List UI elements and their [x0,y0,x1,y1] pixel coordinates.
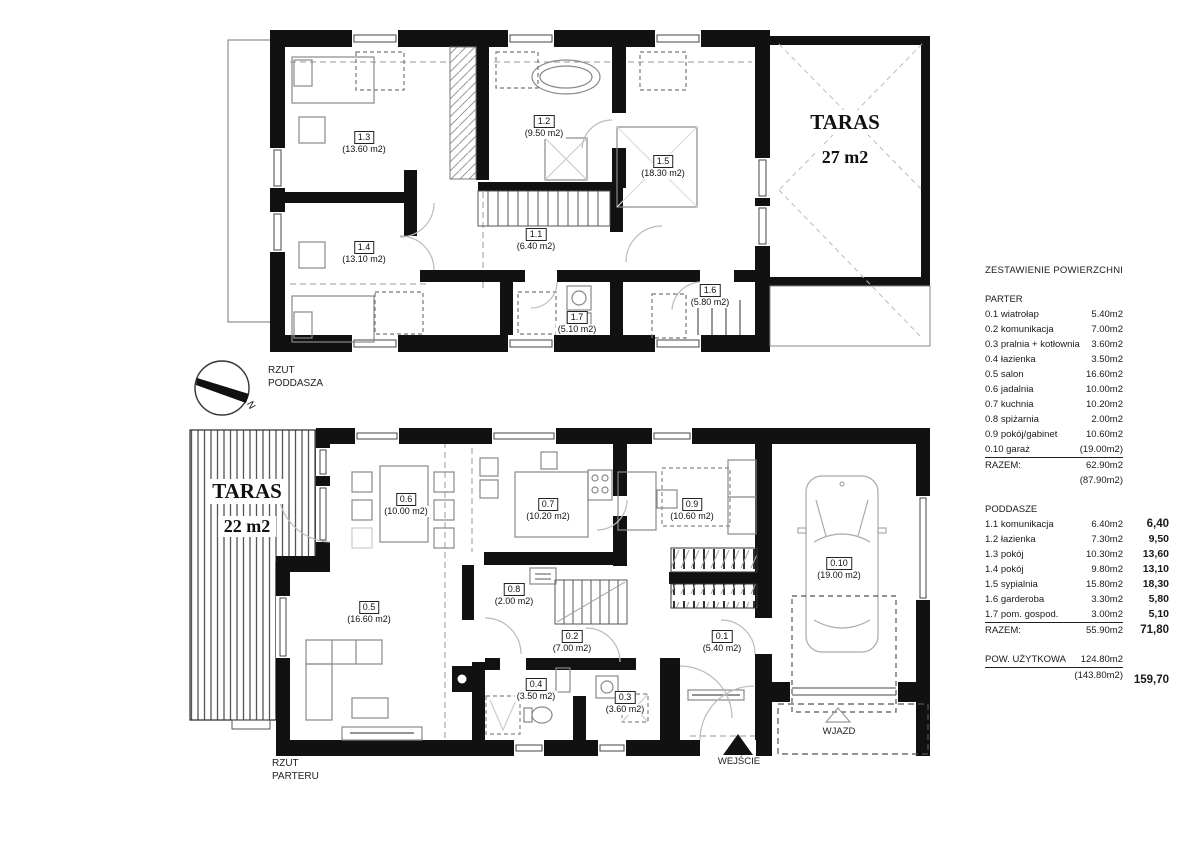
parter-total-extra-row: (87.90m2) [985,473,1177,488]
attic-stairs [478,191,610,226]
table-row: 0.8 spiżarnia2.00m2 [985,412,1177,427]
table-row: 0.4 łazienka3.50m2 [985,352,1177,367]
table-row: 0.1 wiatrołap5.40m2 [985,307,1177,322]
room-label-1-6: 1.6 (5.80 m2) [689,284,732,308]
room-label-1-4: 1.4 (13.10 m2) [340,241,388,265]
driveway-label: WJAZD [823,726,856,737]
table-row: 1.6 garderoba3.30m25,80 [985,592,1177,607]
usable-area-row: POW. UŻYTKOWA124.80m2 [985,652,1177,668]
driveway-marker [826,708,850,722]
room-label-0-1: 0.1 (5.40 m2) [701,630,744,654]
poddasze-total-row: RAZEM:55.90m271,80 [985,623,1177,638]
attic-terrace-label: TARAS 27 m2 [804,110,886,168]
room-label-1-2: 1.2 (9.50 m2) [523,115,566,139]
ground-terrace [190,430,316,729]
floor-plan-sheet: N [0,0,1200,844]
table-row: 0.3 pralnia + kotłownia3.60m2 [985,337,1177,352]
entrance-label: WEJŚCIE [718,756,760,767]
table-row: 0.5 salon16.60m2 [985,367,1177,382]
room-label-0-7: 0.7 (10.20 m2) [524,498,572,522]
usable-area-extra-row: (143.80m2)159,70 [985,668,1177,688]
summary-title: ZESTAWIENIE POWIERZCHNI [985,263,1177,278]
room-label-0-9: 0.9 (10.60 m2) [668,498,716,522]
ground-plan [190,428,930,756]
attic-plan: N [195,30,930,415]
table-row: 0.10 garaż(19.00m2) [985,442,1177,458]
room-label-1-5: 1.5 (18.30 m2) [639,155,687,179]
room-label-0-8: 0.8 (2.00 m2) [493,583,536,607]
room-label-0-6: 0.6 (10.00 m2) [382,493,430,517]
room-label-1-3: 1.3 (13.60 m2) [340,131,388,155]
room-label-0-2: 0.2 (7.00 m2) [551,630,594,654]
area-summary-panel: ZESTAWIENIE POWIERZCHNI PARTER 0.1 wiatr… [985,263,1177,688]
table-row: 0.6 jadalnia10.00m2 [985,382,1177,397]
table-row: 0.9 pokój/gabinet10.60m2 [985,427,1177,442]
attic-plan-caption: RZUT PODDASZA [268,364,323,390]
poddasze-header: PODDASZE [985,502,1177,517]
parter-header: PARTER [985,292,1177,307]
room-label-0-5: 0.5 (16.60 m2) [345,601,393,625]
table-row: 1.7 pom. gospod.3.00m25,10 [985,607,1177,623]
attic-terrace [770,36,930,346]
table-row: 1.5 sypialnia15.80m218,30 [985,577,1177,592]
room-label-1-1: 1.1 (6.40 m2) [515,228,558,252]
ground-plan-caption: RZUT PARTERU [272,757,319,783]
parter-total-row: RAZEM:62.90m2 [985,458,1177,473]
room-label-1-7: 1.7 (5.10 m2) [556,311,599,335]
table-row: 0.7 kuchnia10.20m2 [985,397,1177,412]
room-label-0-3: 0.3 (3.60 m2) [604,691,647,715]
room-label-0-10: 0.10 (19.00 m2) [815,557,863,581]
room-label-0-4: 0.4 (3.50 m2) [515,678,558,702]
ground-terrace-label: TARAS 22 m2 [206,479,288,537]
table-row: 1.3 pokój10.30m213,60 [985,547,1177,562]
table-row: 1.1 komunikacja6.40m26,40 [985,517,1177,532]
table-row: 1.2 łazienka7.30m29,50 [985,532,1177,547]
table-row: 0.2 komunikacja7.00m2 [985,322,1177,337]
compass-icon: N [195,361,257,415]
table-row: 1.4 pokój9.80m213,10 [985,562,1177,577]
